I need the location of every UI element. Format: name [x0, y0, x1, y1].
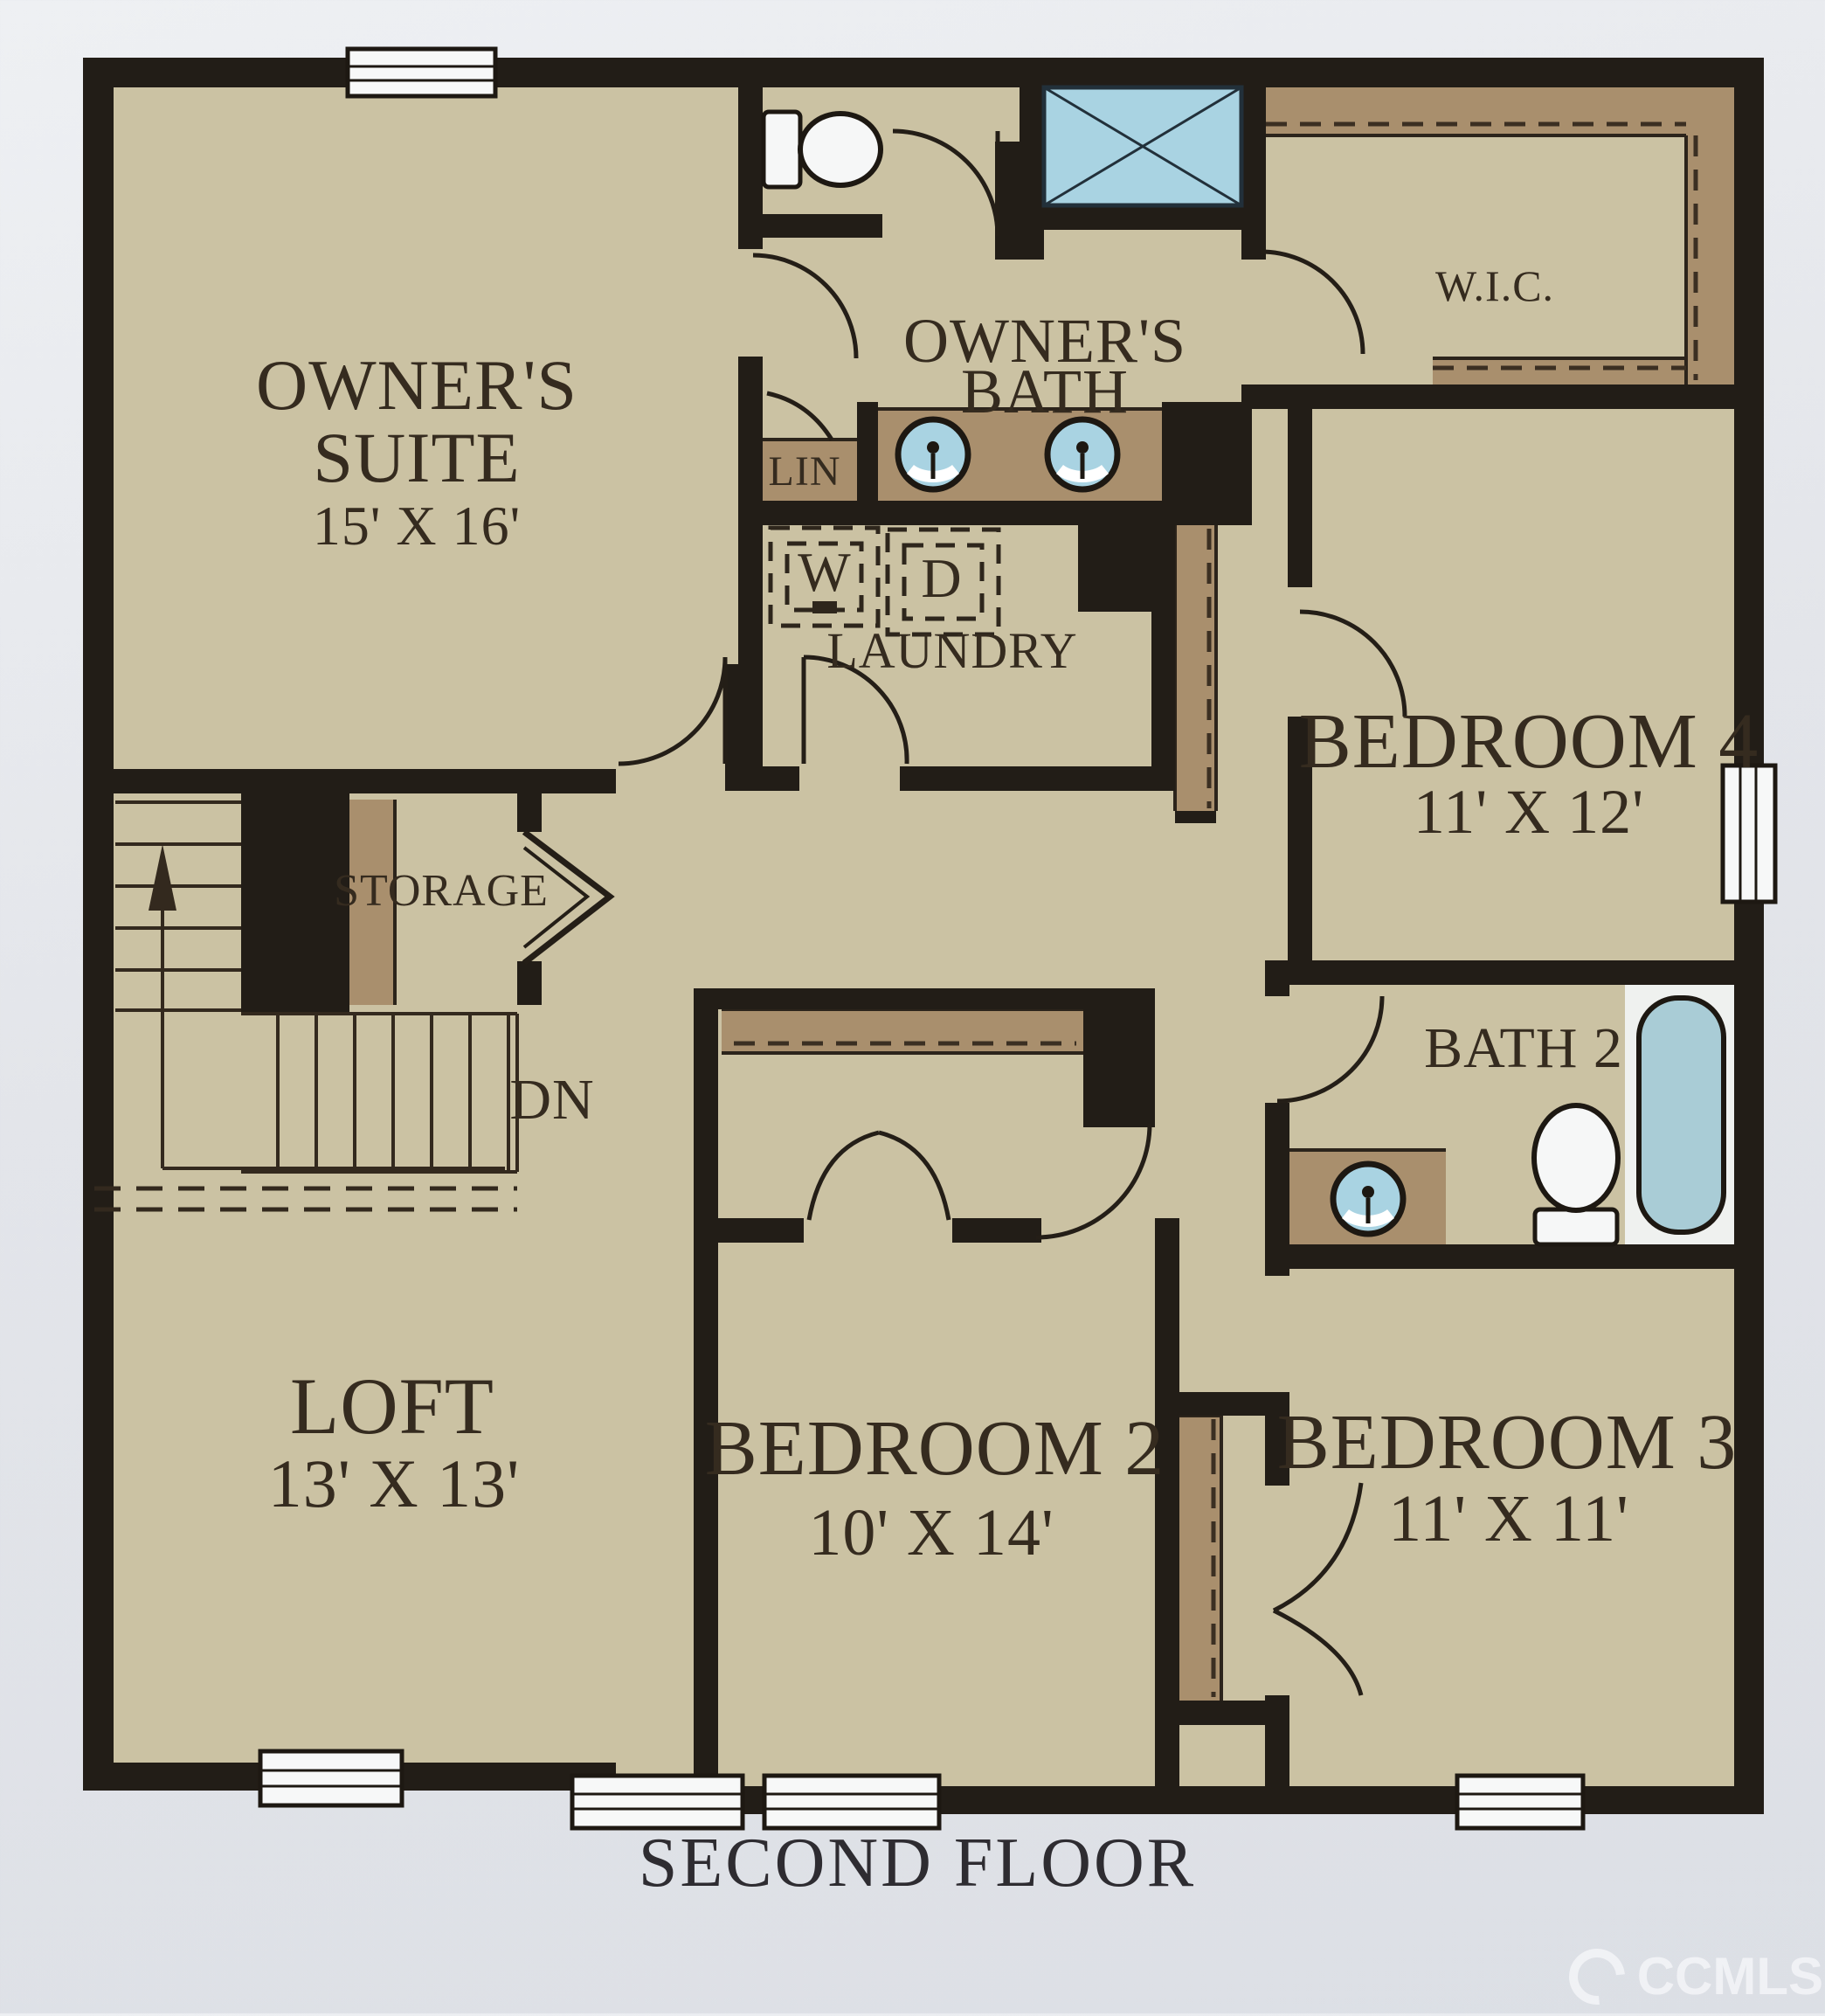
window: [1723, 766, 1775, 902]
page-title: SECOND FLOOR: [639, 1828, 1196, 1898]
window: [1457, 1776, 1583, 1828]
window: [764, 1776, 939, 1828]
laundry-label: LAUNDRY: [826, 626, 1077, 676]
loft-label: LOFT: [290, 1366, 494, 1446]
ccmls-watermark: CCMLS: [1569, 1946, 1823, 2006]
owners-suite-label: OWNER'S: [256, 350, 577, 421]
bathtub-icon: [1625, 985, 1734, 1244]
bedroom4-label: BEDROOM 4: [1299, 703, 1759, 781]
bedroom2-label: BEDROOM 2: [705, 1410, 1165, 1488]
sink-icon: [898, 419, 968, 489]
loft-dims: 13' X 13': [268, 1450, 520, 1518]
toilet-icon: [1534, 1105, 1618, 1244]
dryer-label: D: [921, 551, 962, 606]
owners-suite-dims: 15' X 16': [313, 498, 521, 554]
sink-icon: [1047, 419, 1117, 489]
shower-icon: [1044, 87, 1241, 205]
washer-label: W: [798, 544, 851, 600]
window: [260, 1751, 402, 1805]
bedroom3-label: BEDROOM 3: [1277, 1403, 1738, 1482]
ccmls-text: CCMLS: [1637, 1946, 1823, 2006]
window: [572, 1776, 743, 1828]
owners-suite-label-2: SUITE: [313, 422, 520, 494]
window: [348, 49, 495, 96]
ccmls-logo-icon: [1558, 1936, 1636, 2015]
bedroom2-dims: 10' X 14': [808, 1500, 1054, 1566]
storage-label: STORAGE: [334, 869, 549, 914]
bedroom3-dims: 11' X 11': [1388, 1486, 1629, 1552]
washer-detail: [812, 601, 837, 613]
owners-bath-label-2: BATH: [961, 360, 1129, 423]
bedroom4-dims: 11' X 12': [1414, 780, 1644, 843]
stairs-down-label: DN: [509, 1071, 594, 1129]
sink-icon: [1333, 1164, 1403, 1234]
lin-label: LIN: [769, 451, 841, 493]
toilet-icon: [764, 112, 881, 187]
wic-label: W.I.C.: [1435, 264, 1554, 308]
floor-plan: OWNER'S SUITE 15' X 16' OWNER'S BATH W.I…: [0, 0, 1825, 2013]
bath2-label: BATH 2: [1424, 1020, 1623, 1077]
